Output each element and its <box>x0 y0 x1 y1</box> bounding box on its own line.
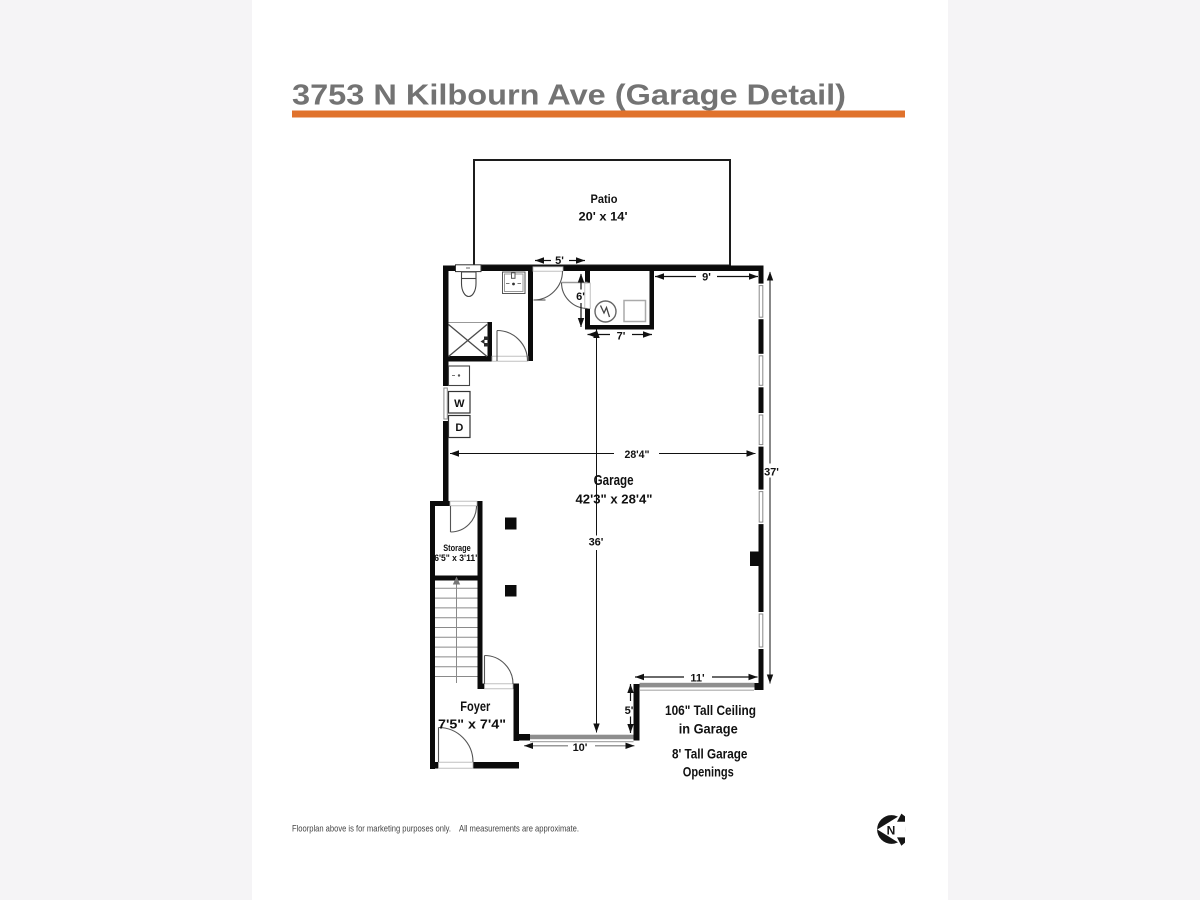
svg-text:10': 10' <box>573 742 588 754</box>
svg-text:36': 36' <box>589 537 604 549</box>
svg-text:106" Tall Ceiling: 106" Tall Ceiling <box>665 702 756 718</box>
svg-text:Foyer: Foyer <box>460 698 490 714</box>
svg-text:42'3" x 28'4": 42'3" x 28'4" <box>576 492 653 507</box>
svg-text:9': 9' <box>702 272 711 284</box>
svg-text:Garage: Garage <box>594 472 634 489</box>
svg-text:5': 5' <box>555 255 564 267</box>
svg-text:28'4": 28'4" <box>625 449 650 461</box>
svg-text:3753 N Kilbourn Ave (Garage De: 3753 N Kilbourn Ave (Garage Detail) <box>292 80 846 112</box>
svg-text:N: N <box>887 823 896 837</box>
svg-text:37': 37' <box>764 467 779 479</box>
svg-text:7'5" x 7'4": 7'5" x 7'4" <box>438 717 506 732</box>
svg-text:Floorplan above is for marketi: Floorplan above is for marketing purpose… <box>292 824 451 835</box>
svg-text:20' x 14': 20' x 14' <box>579 210 628 224</box>
svg-text:7': 7' <box>617 331 626 343</box>
svg-text:Storage: Storage <box>443 543 471 553</box>
svg-text:Patio: Patio <box>591 192 618 206</box>
svg-text:Openings: Openings <box>683 764 734 780</box>
svg-text:in Garage: in Garage <box>679 721 738 737</box>
svg-text:W: W <box>454 398 465 410</box>
svg-text:5': 5' <box>625 705 634 717</box>
svg-text:6'5" x 3'11": 6'5" x 3'11" <box>434 553 479 563</box>
svg-text:All measurements are approxima: All measurements are approximate. <box>459 824 579 835</box>
svg-text:8' Tall Garage: 8' Tall Garage <box>672 746 748 762</box>
svg-text:11': 11' <box>690 673 705 685</box>
svg-text:D: D <box>455 422 463 434</box>
svg-text:6': 6' <box>576 291 585 303</box>
